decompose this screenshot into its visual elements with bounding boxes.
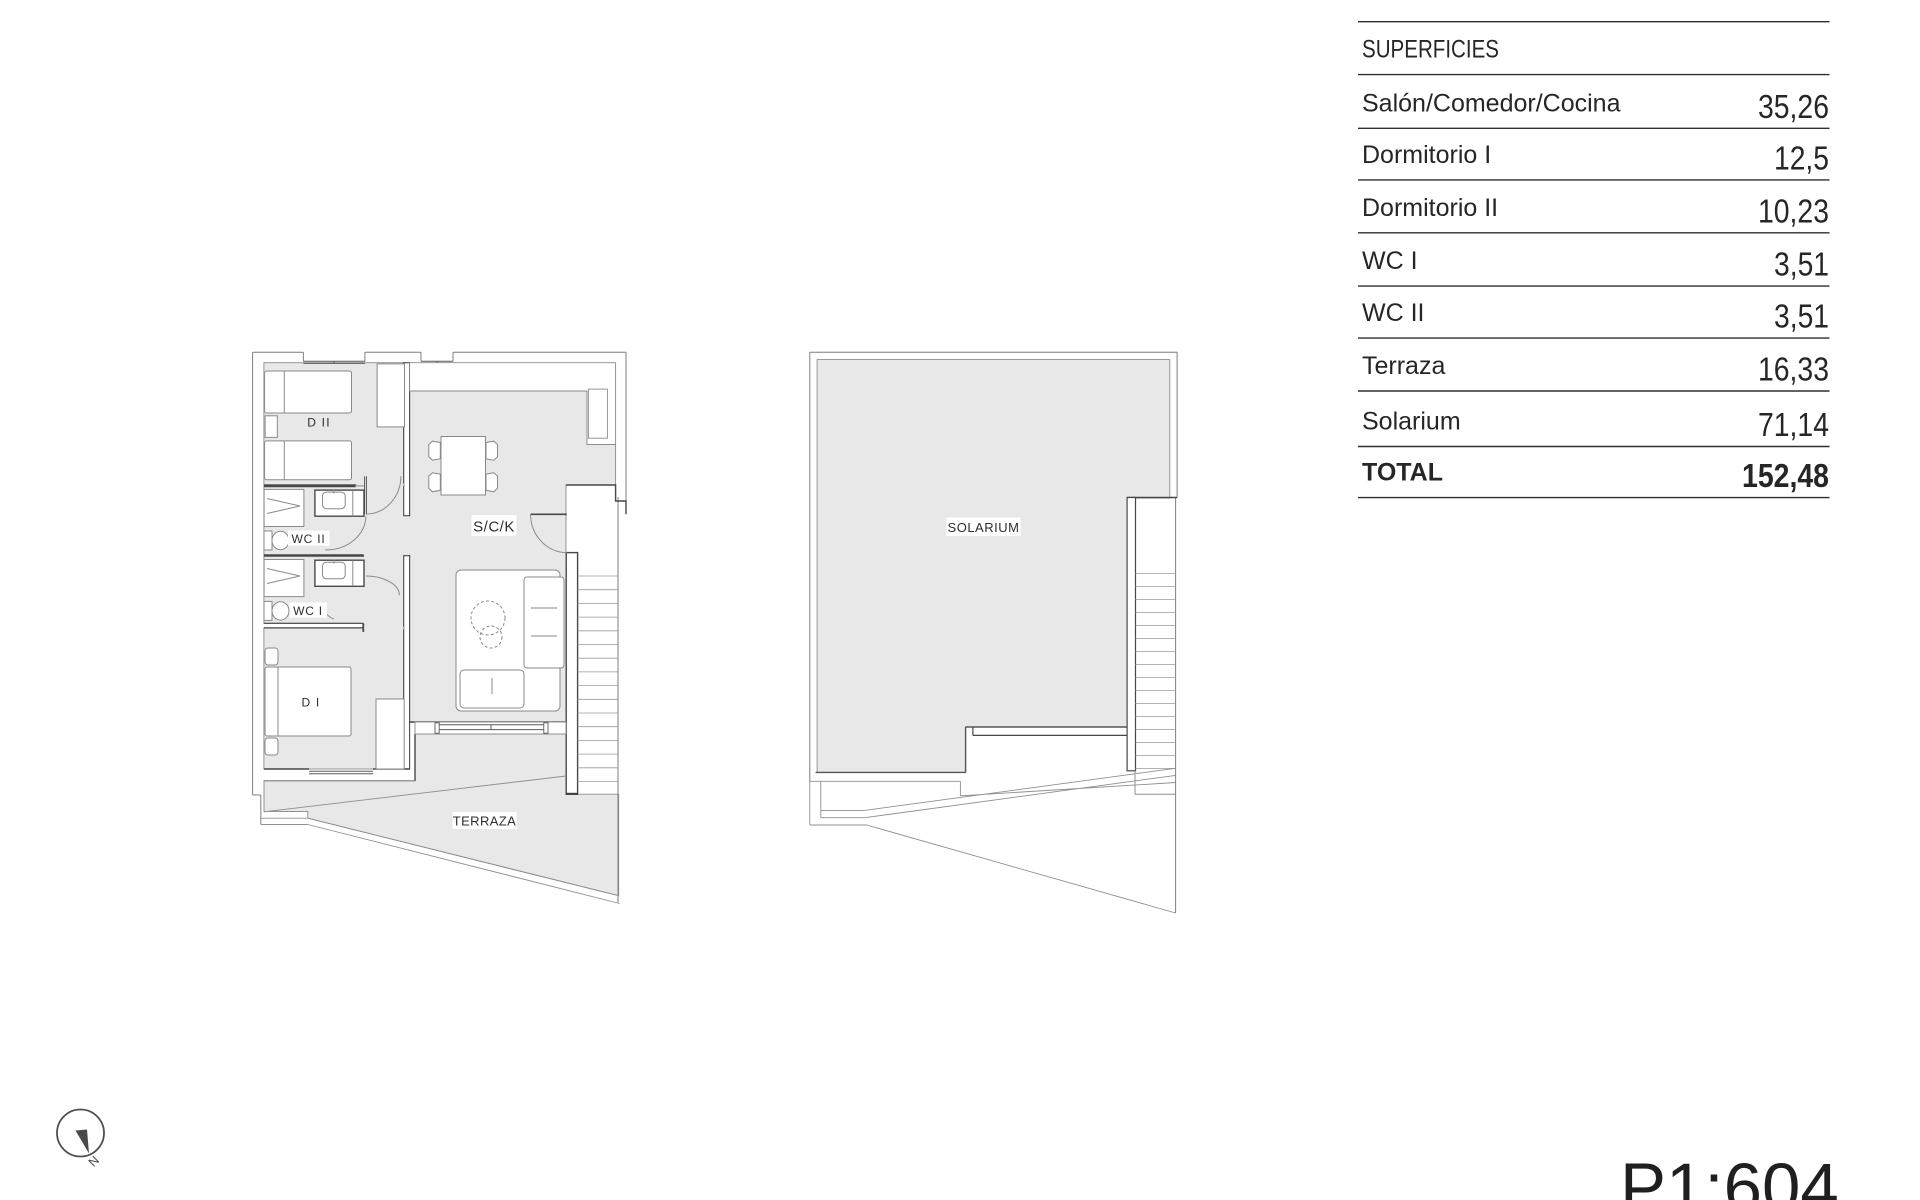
svg-text:Salón/Comedor/Cocina: Salón/Comedor/Cocina [1362, 89, 1621, 117]
svg-text:SOLARIUM: SOLARIUM [948, 520, 1020, 535]
svg-text:Terraza: Terraza [1362, 352, 1445, 380]
svg-text:SUPERFICIES: SUPERFICIES [1362, 36, 1499, 64]
svg-text:Dormitorio II: Dormitorio II [1362, 194, 1498, 222]
svg-text:WC I: WC I [293, 604, 323, 618]
svg-text:WC I: WC I [1362, 247, 1418, 275]
svg-text:WC II: WC II [292, 532, 326, 546]
svg-text:D II: D II [307, 416, 330, 430]
svg-text:16,33: 16,33 [1758, 351, 1829, 388]
svg-text:TOTAL: TOTAL [1362, 459, 1443, 487]
svg-text:35,26: 35,26 [1758, 88, 1829, 125]
svg-text:12,5: 12,5 [1774, 139, 1829, 176]
svg-text:71,14: 71,14 [1758, 406, 1829, 443]
svg-text:S/C/K: S/C/K [473, 519, 515, 536]
svg-text:TERRAZA: TERRAZA [453, 814, 516, 829]
svg-text:P1:604: P1:604 [1620, 1149, 1839, 1200]
svg-text:152,48: 152,48 [1742, 457, 1829, 494]
svg-text:10,23: 10,23 [1758, 192, 1829, 229]
svg-text:3,51: 3,51 [1774, 246, 1829, 283]
svg-text:Solarium: Solarium [1362, 408, 1461, 436]
svg-text:WC II: WC II [1362, 299, 1425, 327]
svg-text:3,51: 3,51 [1774, 298, 1829, 335]
svg-text:Dormitorio I: Dormitorio I [1362, 141, 1491, 169]
svg-text:D I: D I [302, 696, 321, 710]
